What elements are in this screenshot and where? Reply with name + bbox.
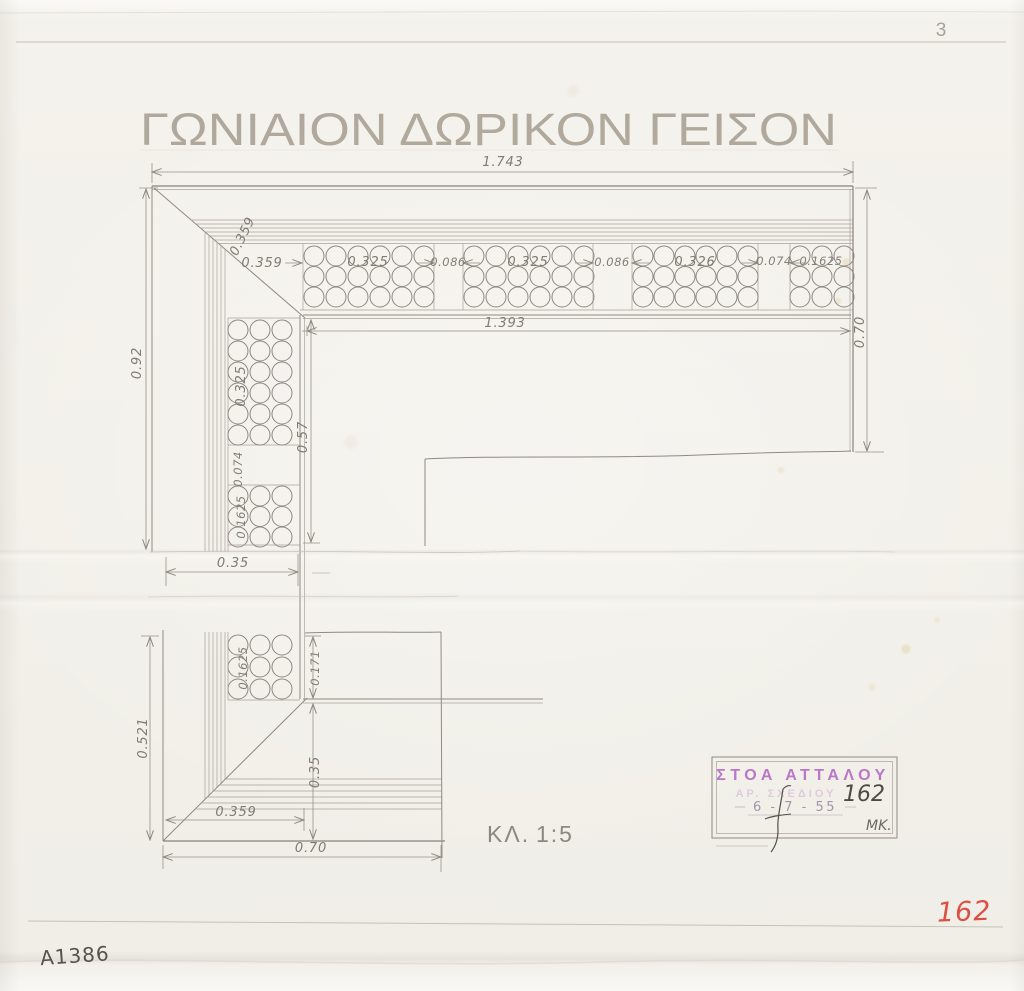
dim-corner-offset: 0.359 bbox=[241, 256, 282, 271]
dim-soffit-depth: 0.57 bbox=[296, 421, 311, 453]
scale-label: ΚΛ. bbox=[487, 821, 530, 847]
scale-value: 1:5 bbox=[536, 821, 574, 847]
dim-lower-height: 0.521 bbox=[136, 717, 151, 758]
dim-corner-diagonal: 0.359 bbox=[227, 215, 259, 259]
catalog-number: A1386 bbox=[39, 941, 110, 970]
sheet-number: 3 bbox=[936, 20, 947, 41]
dim-mutule-2: 0.325 bbox=[507, 255, 548, 270]
dim-mutule-3: 0.326 bbox=[674, 255, 715, 270]
inventory-number-red: 162 bbox=[936, 896, 992, 929]
stamp-date: 6 - 7 - 55 bbox=[753, 800, 837, 815]
dim-mutule-4: 0.1625 bbox=[799, 254, 842, 268]
stamp-drawing-number: 162 bbox=[843, 782, 885, 807]
stamp-block: ΣΤΟΑ ΑΤΤΑΛΟΥ ΑΡ. ΣΧΕΔΙΟΥ 162 6 - 7 - 55 … bbox=[712, 757, 897, 852]
dim-via-1: 0.086 bbox=[430, 255, 465, 269]
dim-lower-mutule: 0.1625 bbox=[236, 646, 250, 689]
dim-top-total: 1.743 bbox=[482, 155, 523, 170]
paper-tear-lines bbox=[148, 551, 895, 597]
scale-note: ΚΛ. 1:5 bbox=[487, 821, 574, 847]
geison-outline-lower bbox=[163, 630, 543, 858]
dim-left-mutule-2: 0.1625 bbox=[234, 495, 248, 538]
dim-left-width: 0.35 bbox=[217, 556, 249, 571]
dim-left-height: 0.92 bbox=[130, 347, 145, 379]
stamp-subtitle: ΑΡ. ΣΧΕΔΙΟΥ bbox=[736, 788, 837, 800]
dimension-labels: 1.743 0.359 0.359 0.325 0.086 0.325 0.08… bbox=[130, 155, 868, 856]
dim-soffit-length: 1.393 bbox=[484, 316, 525, 331]
dim-left-mutule: 0.325 bbox=[234, 365, 249, 406]
dim-via-2: 0.086 bbox=[594, 255, 629, 269]
dim-lower-inner: 0.35 bbox=[308, 756, 323, 788]
drawing-sheet: 3 ΓΩΝΙΑΙΟΝ ΔΩΡΙΚΟΝ ΓΕΙΣΟΝ bbox=[0, 0, 1024, 991]
dim-mutule-1: 0.325 bbox=[347, 255, 388, 270]
dim-left-via: 0.074 bbox=[231, 451, 245, 486]
dim-bottom-total: 0.70 bbox=[295, 841, 327, 856]
dim-right-depth: 0.70 bbox=[853, 316, 868, 348]
dim-bottom-offset: 0.359 bbox=[215, 805, 256, 820]
drawing-title: ΓΩΝΙΑΙΟΝ ΔΩΡΙΚΟΝ ΓΕΙΣΟΝ bbox=[140, 104, 837, 155]
stamp-initials: MK. bbox=[866, 818, 892, 834]
dim-lower-offset: 0.171 bbox=[308, 650, 322, 685]
dim-via-3: 0.074 bbox=[756, 254, 791, 268]
